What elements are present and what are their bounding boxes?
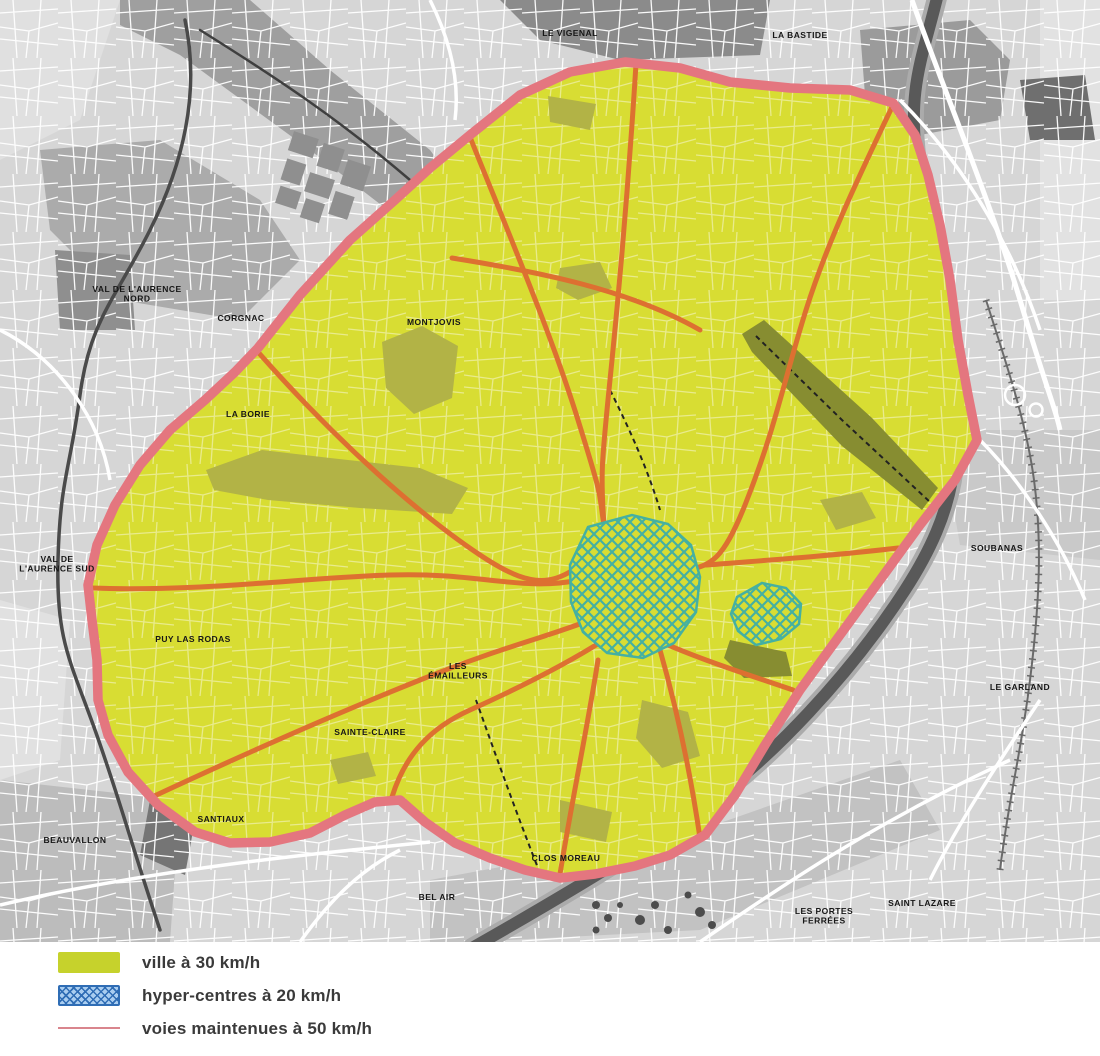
speed-zone-map-page: LE VIGENALLA BASTIDEVAL DE L'AURENCENORD…: [0, 0, 1100, 1056]
district-label-sainte-claire: SAINTE-CLAIRE: [334, 727, 406, 737]
district-label-soubanas: SOUBANAS: [971, 543, 1023, 553]
legend-swatch-hyper: [58, 985, 120, 1006]
legend-row-ville: ville à 30 km/h: [58, 951, 758, 973]
district-label-le-vigenal: LE VIGENAL: [542, 28, 598, 38]
legend-label-hyper: hyper-centres à 20 km/h: [142, 986, 341, 1004]
district-label-la-borie: LA BORIE: [226, 409, 270, 419]
city-map: LE VIGENALLA BASTIDEVAL DE L'AURENCENORD…: [0, 0, 1100, 942]
legend-label-voies: voies maintenues à 50 km/h: [142, 1019, 372, 1037]
legend-swatch-voies-wrap: [58, 1018, 120, 1039]
legend-swatch-ville: [58, 952, 120, 973]
legend-swatch-voies: [58, 1027, 120, 1029]
district-label-bel-air: BEL AIR: [419, 892, 456, 902]
district-label-les-portes-ferrees: LES PORTESFERRÉES: [795, 906, 853, 926]
district-label-le-garland: LE GARLAND: [990, 682, 1050, 692]
district-label-corgnac: CORGNAC: [217, 313, 264, 323]
district-label-la-bastide: LA BASTIDE: [772, 30, 827, 40]
legend-row-hyper: hyper-centres à 20 km/h: [58, 984, 758, 1006]
legend-row-voies: voies maintenues à 50 km/h: [58, 1017, 758, 1039]
district-label-montjovis: MONTJOVIS: [407, 317, 461, 327]
district-label-beauvallon: BEAUVALLON: [44, 835, 107, 845]
district-label-puy-las-rodas: PUY LAS RODAS: [155, 634, 231, 644]
map-canvas: LE VIGENALLA BASTIDEVAL DE L'AURENCENORD…: [0, 0, 1100, 942]
legend: ville à 30 km/h hyper-centres à 20 km/h …: [58, 951, 758, 1039]
district-label-saint-lazare: SAINT LAZARE: [888, 898, 956, 908]
district-label-santiaux: SANTIAUX: [197, 814, 244, 824]
district-label-clos-moreau: CLOS MOREAU: [532, 853, 601, 863]
legend-label-ville: ville à 30 km/h: [142, 953, 260, 971]
